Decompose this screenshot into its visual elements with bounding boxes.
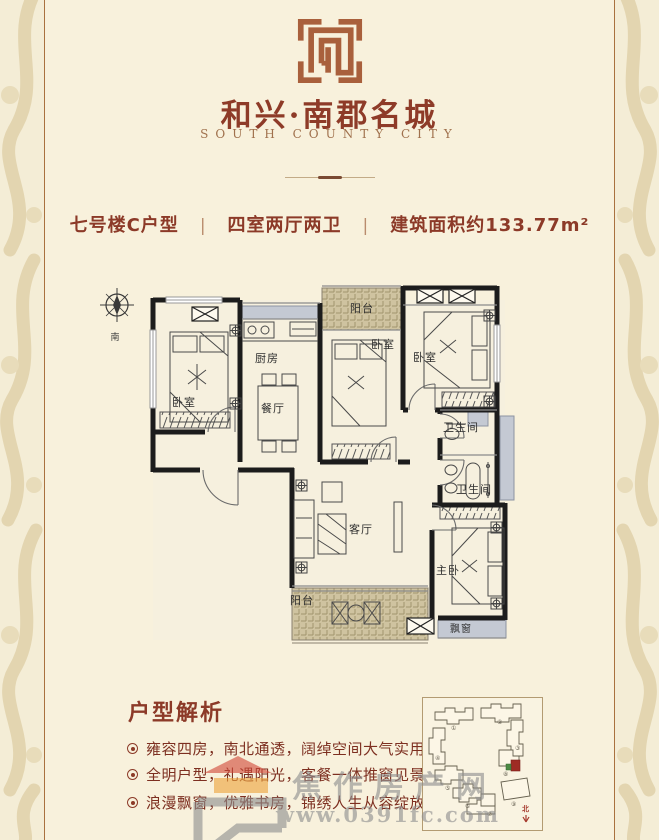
svg-text:③: ③ (515, 745, 520, 752)
room-label-living: 客厅 (349, 521, 373, 537)
room-label-kitchen: 厨房 (255, 350, 279, 366)
svg-text:⑥: ⑥ (465, 803, 470, 810)
analysis-bullet: 全明户型，礼遇阳光，客餐一体推窗见景 (127, 764, 457, 785)
svg-text:②: ② (497, 719, 503, 726)
floor-plan: 卧室 厨房 餐厅 阳台 卧室 卧室 卫生间 卫生间 客厅 主卧 阳台 飘窗 南 (0, 0, 659, 840)
highlighted-building (511, 760, 520, 771)
xbox-wardrobe-icon (449, 289, 475, 303)
poster-page: 和兴·南郡名城 SOUTH COUNTY CITY 七号楼C户型|四室两厅两卫|… (0, 0, 659, 840)
compass-icon (100, 288, 134, 322)
bullet-text: 雍容四房，南北通透，阔绰空间大气实用 (146, 740, 425, 758)
bullet-icon (127, 769, 138, 780)
svg-text:⑧: ⑧ (503, 771, 508, 778)
room-label-bedroom: 卧室 (371, 336, 395, 352)
compass-south-label: 南 (103, 330, 127, 343)
svg-text:⑤: ⑤ (445, 785, 450, 792)
room-label-bedroom: 卧室 (413, 349, 437, 365)
bullet-icon (127, 743, 138, 754)
bullet-text: 全明户型，礼遇阳光，客餐一体推窗见景 (146, 766, 425, 784)
svg-text:①: ① (451, 725, 456, 732)
svg-text:北: 北 (522, 804, 529, 813)
svg-text:⑨: ⑨ (511, 801, 516, 808)
analysis-bullet: 雍容四房，南北通透，阔绰空间大气实用 (127, 738, 457, 759)
room-label-master: 主卧 (436, 562, 460, 578)
room-label-dining: 餐厅 (261, 400, 285, 416)
analysis-bullet: 浪漫飘窗，优雅书房，锦绣人生从容绽放 (127, 792, 457, 813)
room-label-balcony-top: 阳台 (350, 300, 374, 316)
svg-text:⑦: ⑦ (487, 811, 493, 818)
room-label-bedroom: 卧室 (172, 394, 196, 410)
bullet-icon (127, 797, 138, 808)
xbox-wardrobe-icon (407, 618, 434, 634)
room-label-baywindow: 飘窗 (450, 620, 472, 635)
room-label-bathroom: 卫生间 (443, 419, 479, 435)
site-map: ① ② ③ ④ ⑤ ⑥ ⑦ ⑧ ⑨ 北 (422, 697, 543, 831)
analysis-heading: 户型解析 (128, 695, 224, 727)
bullet-text: 浪漫飘窗，优雅书房，锦绣人生从容绽放 (146, 794, 425, 812)
svg-text:④: ④ (435, 755, 440, 762)
xbox-wardrobe-icon (417, 289, 443, 303)
north-indicator: 北 (522, 804, 529, 822)
room-label-balcony-bottom: 阳台 (290, 592, 314, 608)
room-label-bathroom: 卫生间 (456, 481, 492, 497)
xbox-wardrobe-icon (192, 307, 218, 321)
